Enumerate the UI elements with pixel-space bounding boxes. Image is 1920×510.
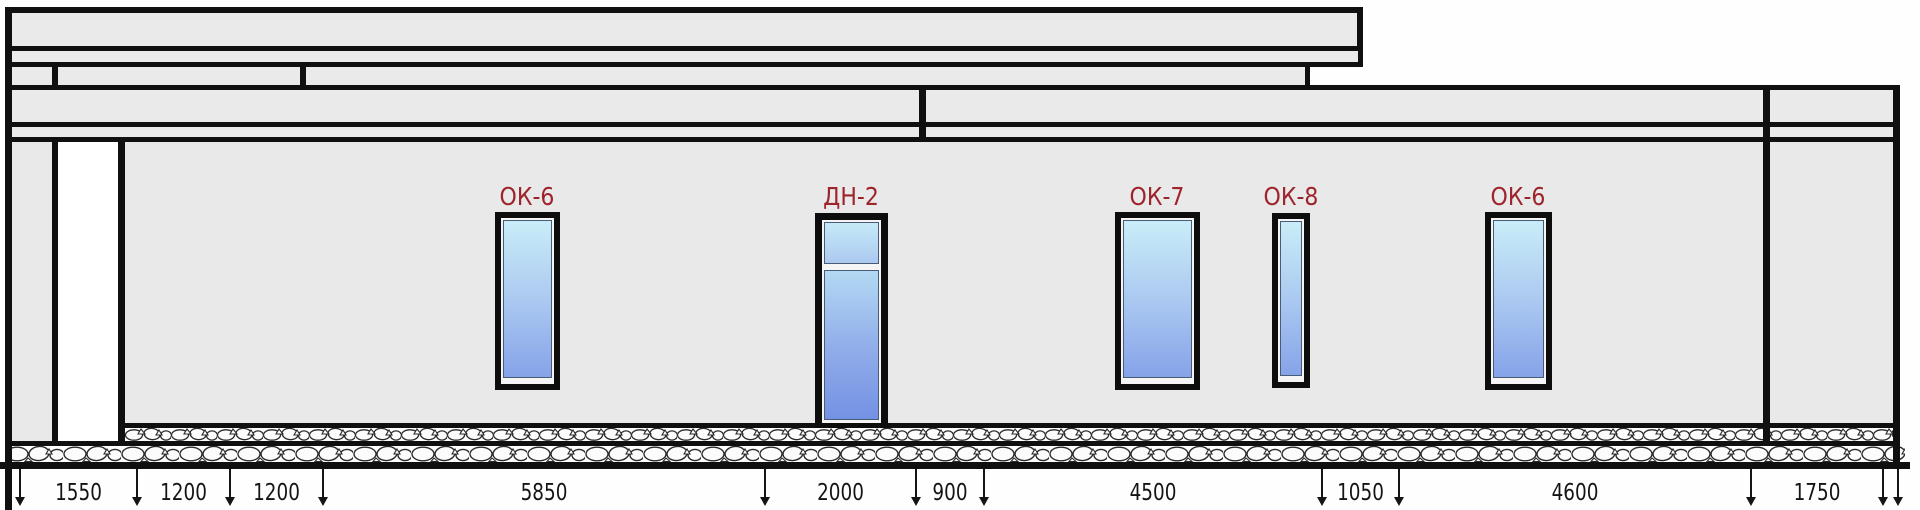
opening-mark-ok8: ОК-8 bbox=[1238, 184, 1344, 210]
window-glass bbox=[1493, 220, 1544, 378]
dimension-label: 1200 bbox=[239, 480, 313, 506]
door-transom-glass bbox=[824, 222, 879, 264]
dimension-tick bbox=[136, 469, 138, 503]
dimension-label: 4600 bbox=[1434, 480, 1716, 506]
window-ok8 bbox=[1272, 213, 1310, 388]
fascia-band-main bbox=[5, 85, 1900, 127]
opening-mark-ok6-left: ОК-6 bbox=[474, 184, 580, 210]
dimension-tick bbox=[322, 469, 324, 503]
window-glass bbox=[1280, 221, 1302, 376]
passage-right-jamb-line bbox=[118, 137, 125, 446]
window-frame bbox=[1121, 218, 1194, 384]
dimension-tick bbox=[1398, 469, 1400, 503]
building-right-edge-line bbox=[1893, 85, 1900, 462]
rubble-hatch-pattern-large bbox=[5, 446, 1905, 462]
band-joint-line bbox=[919, 85, 926, 142]
rubble-hatch-pattern bbox=[125, 428, 1893, 441]
plinth-separator-line bbox=[5, 441, 1900, 446]
dimension-label: 1750 bbox=[1764, 480, 1870, 506]
wall-surface bbox=[5, 137, 1900, 428]
window-frame bbox=[501, 218, 554, 384]
window-ok6-right bbox=[1485, 212, 1552, 390]
opening-mark-ok7: ОК-7 bbox=[1104, 184, 1210, 210]
dimension-tick bbox=[1897, 469, 1899, 503]
dimension-label: 1200 bbox=[146, 480, 220, 506]
dimension-tick bbox=[915, 469, 917, 503]
dimension-label: 4500 bbox=[1018, 480, 1288, 506]
window-ok6-left bbox=[495, 212, 560, 390]
dimension-tick bbox=[1882, 469, 1884, 503]
window-frame bbox=[1491, 218, 1546, 384]
dimension-label: 2000 bbox=[780, 480, 901, 506]
wall-base-line bbox=[118, 423, 1900, 428]
building-left-edge-line bbox=[5, 7, 12, 510]
left-pier-base bbox=[12, 428, 52, 441]
dimension-tick bbox=[764, 469, 766, 503]
plinth-rubble-strip bbox=[125, 428, 1893, 441]
dimension-tick bbox=[229, 469, 231, 503]
dimension-label: 900 bbox=[923, 480, 977, 506]
passage-left-jamb-line bbox=[52, 137, 58, 446]
wall-corner-joint-line bbox=[1763, 85, 1770, 446]
opening-mark-ok6-right: ОК-6 bbox=[1465, 184, 1571, 210]
window-frame bbox=[1278, 219, 1304, 382]
dimension-label: 1550 bbox=[32, 480, 126, 506]
opening-mark-dn2: ДН-2 bbox=[798, 184, 904, 210]
dimension-tick bbox=[1321, 469, 1323, 503]
window-glass bbox=[1123, 220, 1192, 378]
open-passage-recess bbox=[58, 142, 118, 441]
fascia-joint-line-2 bbox=[300, 62, 306, 90]
dimension-tick bbox=[1750, 469, 1752, 503]
dimension-tick bbox=[983, 469, 985, 503]
fascia-joint-line-1 bbox=[52, 62, 58, 90]
dimension-label: 5850 bbox=[367, 480, 721, 506]
ground-line bbox=[0, 462, 1910, 469]
facade-elevation-drawing: ОК-6 ДН-2 ОК-7 ОК-8 ОК-6 1550 1200 1200 … bbox=[0, 0, 1920, 510]
door-leaf-glass bbox=[824, 270, 879, 420]
ground-rubble-strip bbox=[5, 446, 1905, 462]
window-glass bbox=[503, 220, 552, 378]
door-frame bbox=[822, 220, 881, 423]
door-dn2 bbox=[815, 213, 888, 428]
dimension-tick bbox=[19, 469, 21, 503]
window-ok7 bbox=[1115, 212, 1200, 390]
dimension-label: 1050 bbox=[1330, 480, 1392, 506]
